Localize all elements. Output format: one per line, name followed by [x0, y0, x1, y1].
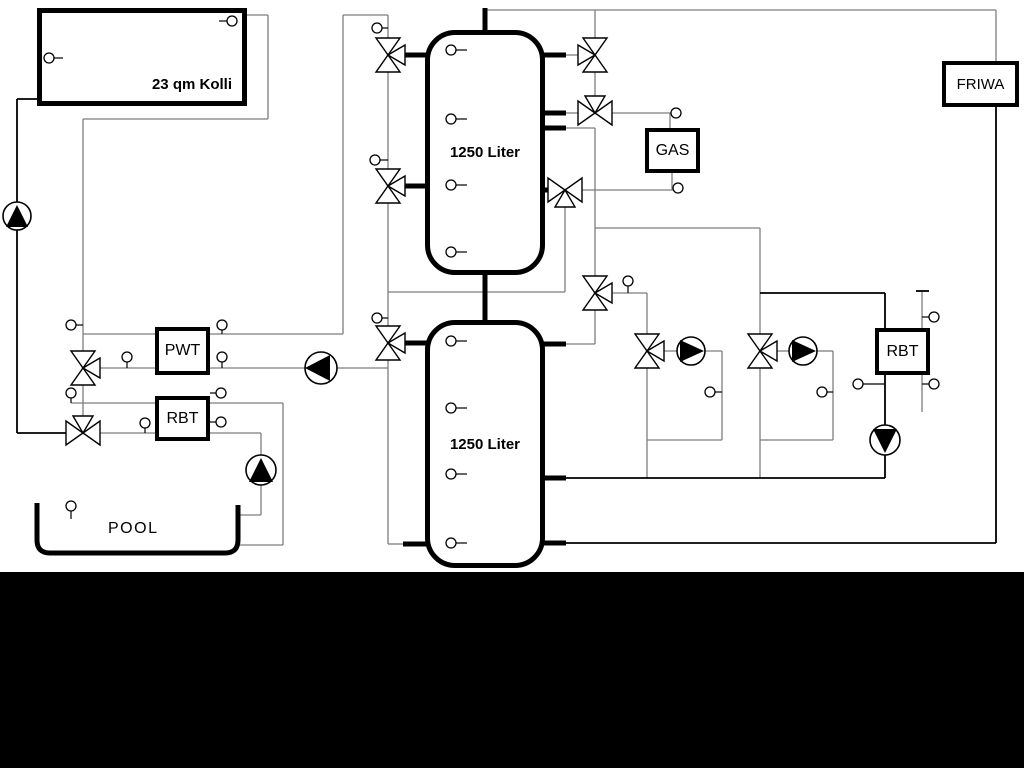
- solar-collector-box: 23 qm Kolli: [37, 8, 247, 106]
- solar-collector-label: 23 qm Kolli: [152, 76, 232, 93]
- temperature-sensor-icon: [705, 387, 715, 397]
- temperature-sensor-icon: [217, 320, 227, 330]
- pump-up-icon: [246, 455, 276, 485]
- temperature-sensor-icon: [671, 108, 681, 118]
- temperature-sensor-icon: [817, 387, 827, 397]
- temperature-sensor-icon: [853, 379, 863, 389]
- three-way-valve-icon: [748, 334, 777, 368]
- three-way-valve-icon: [578, 96, 612, 125]
- temperature-sensor-icon: [216, 388, 226, 398]
- three-way-valve-icon: [66, 416, 100, 445]
- temperature-sensor-icon: [623, 276, 633, 286]
- pump-left-icon: [305, 352, 337, 384]
- rbt-right-box: RBT: [875, 328, 930, 375]
- three-way-valve-icon: [376, 326, 405, 360]
- temperature-sensor-icon: [66, 501, 76, 511]
- rbt-left-box: RBT: [155, 396, 210, 441]
- three-way-valve-icon: [376, 38, 405, 72]
- buffer-tank-top-label: 1250 Liter: [450, 144, 520, 161]
- buffer-tank-bottom-label: 1250 Liter: [450, 436, 520, 453]
- pwt-label: PWT: [165, 342, 201, 360]
- friwa-label: FRIWA: [957, 76, 1005, 93]
- three-way-valve-icon: [578, 38, 607, 72]
- three-way-valve-icon: [548, 178, 582, 207]
- gas-label: GAS: [656, 142, 690, 160]
- three-way-valve-icon: [71, 351, 100, 385]
- temperature-sensor-icon: [372, 313, 382, 323]
- temperature-sensor-icon: [66, 320, 76, 330]
- three-way-valve-icon: [376, 169, 405, 203]
- buffer-tank-bottom: 1250 Liter: [425, 320, 545, 568]
- pool-label: POOL: [108, 520, 158, 538]
- pump-down-icon: [870, 425, 900, 455]
- temperature-sensor-icon: [217, 352, 227, 362]
- temperature-sensor-icon: [122, 352, 132, 362]
- pump-up-icon: [3, 202, 31, 230]
- buffer-tank-top: 1250 Liter: [425, 30, 545, 275]
- three-way-valve-icon: [583, 276, 612, 310]
- gas-boiler-box: GAS: [645, 128, 700, 173]
- temperature-sensor-icon: [673, 183, 683, 193]
- temperature-sensor-icon: [370, 155, 380, 165]
- temperature-sensor-icon: [929, 379, 939, 389]
- temperature-sensor-icon: [929, 312, 939, 322]
- three-way-valve-icon: [635, 334, 664, 368]
- pump-right-icon: [677, 337, 705, 365]
- pwt-heat-exchanger-box: PWT: [155, 327, 210, 375]
- temperature-sensor-icon: [140, 418, 150, 428]
- pump-right-icon: [789, 337, 817, 365]
- bottom-black-band: [0, 572, 1024, 768]
- temperature-sensor-icon: [66, 388, 76, 398]
- rbt-left-label: RBT: [167, 410, 199, 428]
- temperature-sensor-icon: [216, 417, 226, 427]
- friwa-box: FRIWA: [942, 61, 1019, 107]
- rbt-right-label: RBT: [887, 343, 919, 361]
- diagram-canvas: 23 qm Kolli 1250 Liter 1250 Liter PWT RB…: [0, 0, 1024, 768]
- temperature-sensor-icon: [372, 23, 382, 33]
